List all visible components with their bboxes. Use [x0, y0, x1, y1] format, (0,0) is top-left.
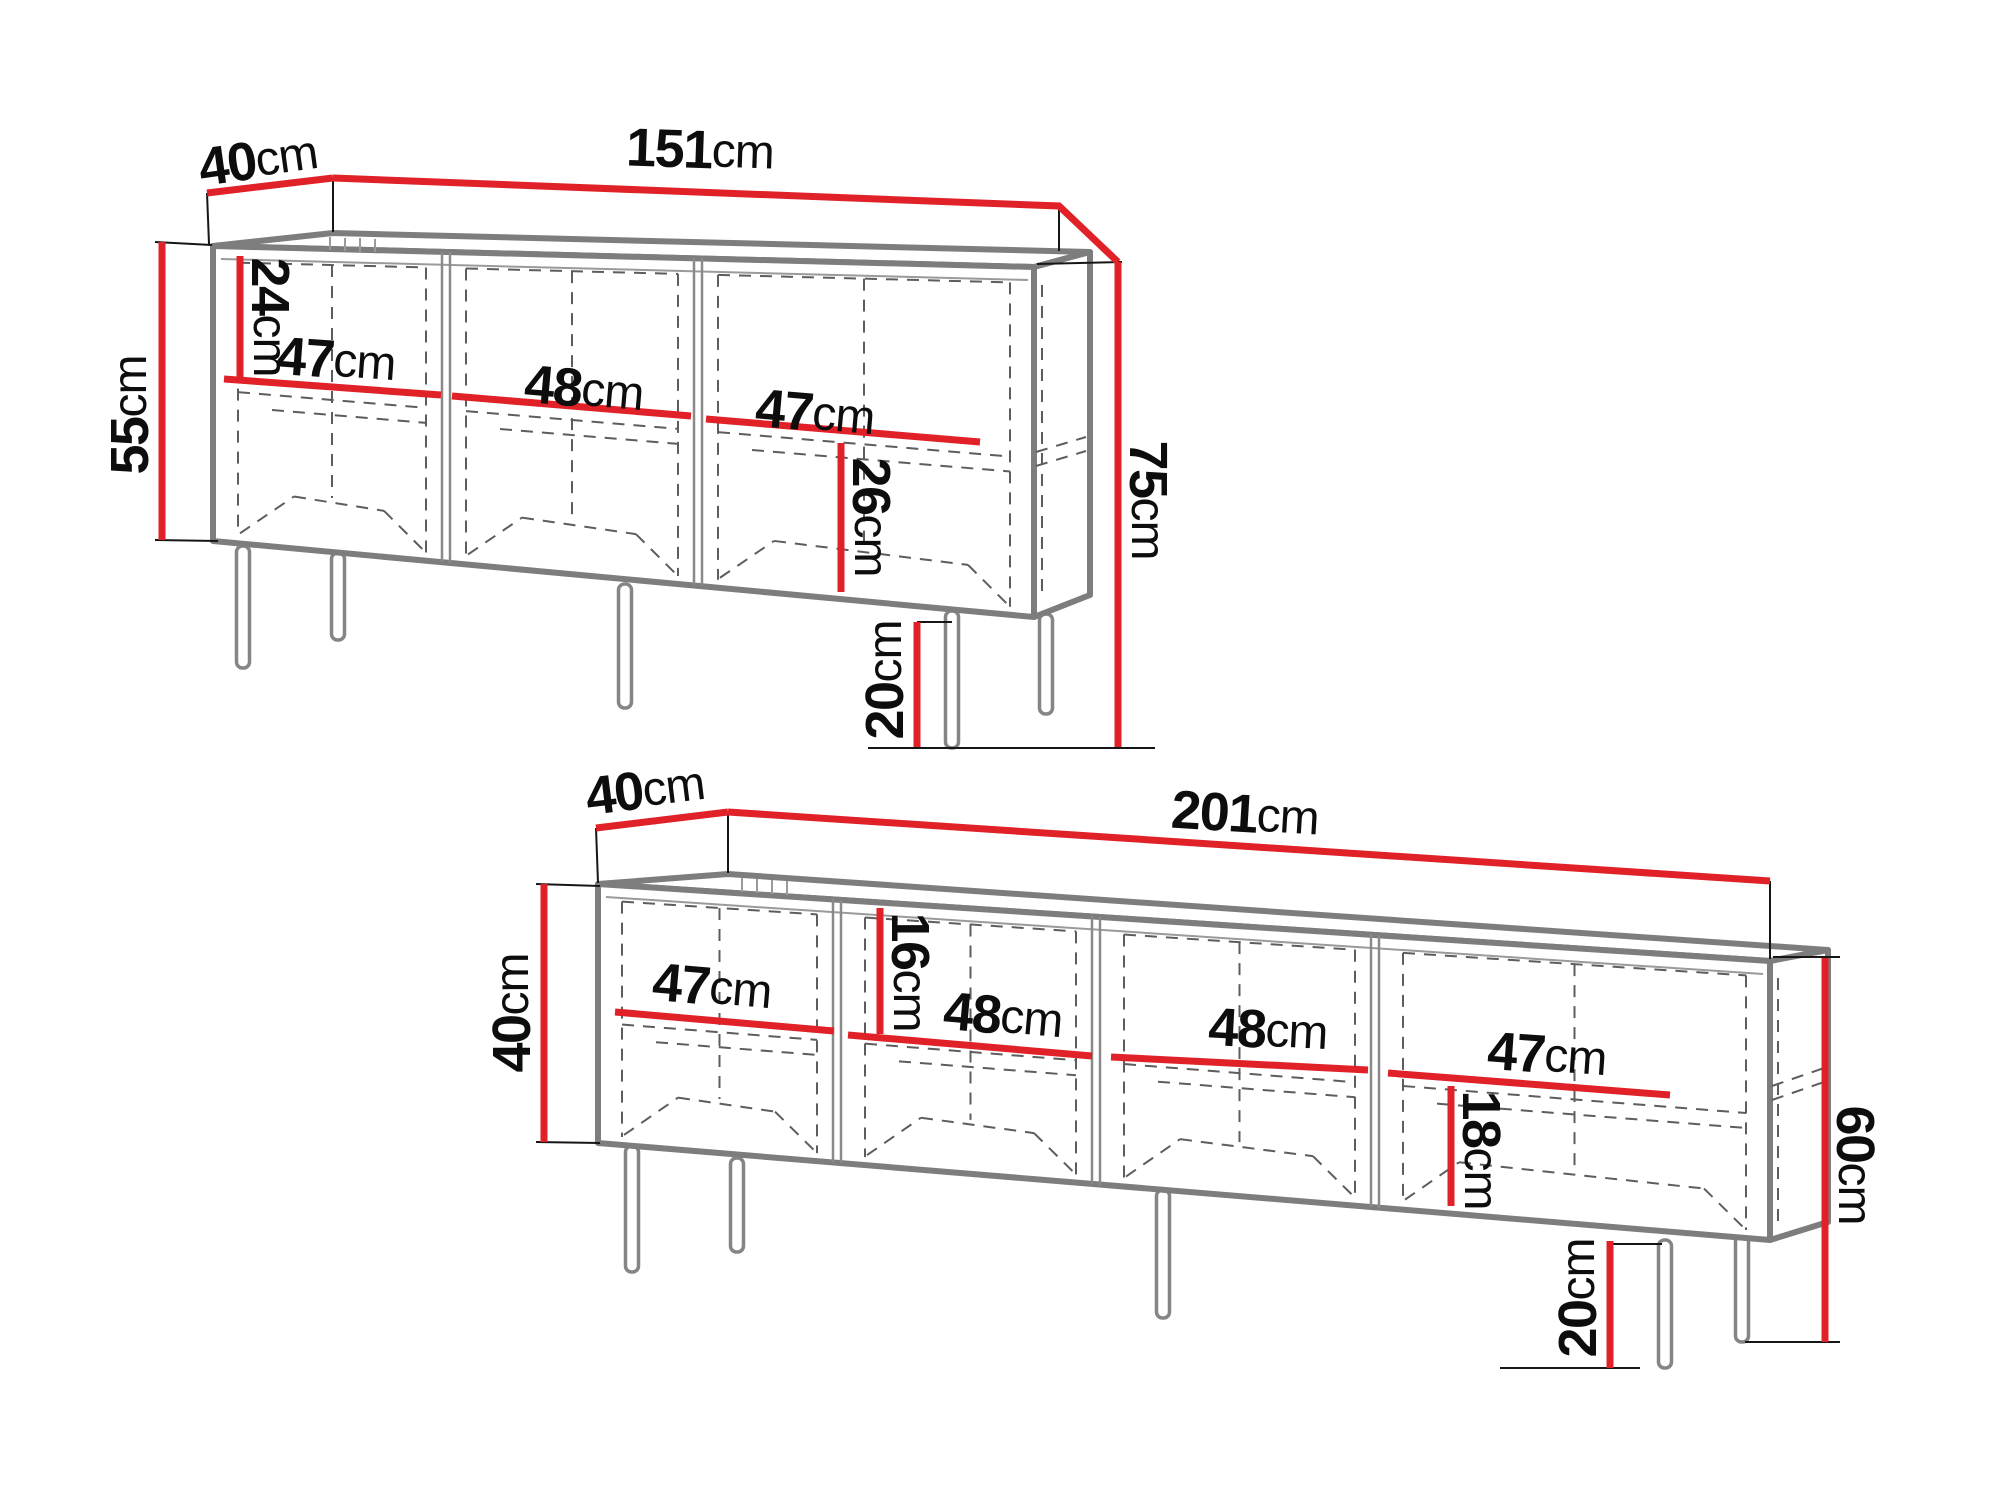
- tv-stand-front-middle-leg: [1157, 1190, 1170, 1318]
- tv-stand-back-left-leg: [731, 1158, 744, 1252]
- sideboard-drawing: 40cm 151cm 55cm 24cm 47cm 48cm 47cm 26cm…: [100, 117, 1178, 748]
- sideboard-shelf1-label: 47cm: [275, 326, 398, 394]
- tv-stand-front-left-leg: [626, 1146, 639, 1272]
- sideboard-width-label: 151cm: [625, 117, 775, 182]
- tv-stand-back-right-leg: [1736, 1232, 1749, 1342]
- tv-stand-leg-height-label: 20cm: [1548, 1238, 1608, 1357]
- diagram-canvas: 40cm 151cm 55cm 24cm 47cm 48cm 47cm 26cm…: [0, 0, 2000, 1500]
- sideboard-leg-height-label: 20cm: [855, 620, 915, 739]
- furniture-dimension-diagram: 40cm 151cm 55cm 24cm 47cm 48cm 47cm 26cm…: [0, 0, 2000, 1500]
- tv-stand-shelf3-label: 48cm: [1207, 997, 1329, 1063]
- sideboard-front-right-leg: [946, 611, 959, 748]
- sideboard-total-height-label: 75cm: [1118, 440, 1178, 559]
- sideboard-front-middle-leg: [619, 584, 632, 708]
- tv-stand-shelf4-label: 47cm: [1486, 1021, 1609, 1089]
- tv-stand-lower-section-label: 18cm: [1451, 1090, 1511, 1209]
- sideboard-body-height-label: 55cm: [100, 355, 160, 474]
- sideboard-lower-section-label: 26cm: [841, 457, 901, 576]
- tv-stand-total-height-label: 60cm: [1825, 1105, 1885, 1224]
- tv-stand-upper-section-label: 16cm: [880, 912, 940, 1031]
- sideboard-back-right-leg: [1040, 614, 1053, 714]
- sideboard-back-left-leg: [332, 553, 345, 640]
- tv-stand-front-right-leg: [1659, 1240, 1672, 1368]
- sideboard-front-left-leg: [237, 546, 250, 668]
- tv-stand-drawing: 40cm 201cm 40cm 16cm 47cm 48cm 48cm 47cm…: [482, 753, 1885, 1368]
- tv-stand-width-label: 201cm: [1170, 780, 1321, 849]
- sideboard-depth-label: 40cm: [195, 122, 321, 198]
- tv-stand-body-height-label: 40cm: [482, 953, 542, 1072]
